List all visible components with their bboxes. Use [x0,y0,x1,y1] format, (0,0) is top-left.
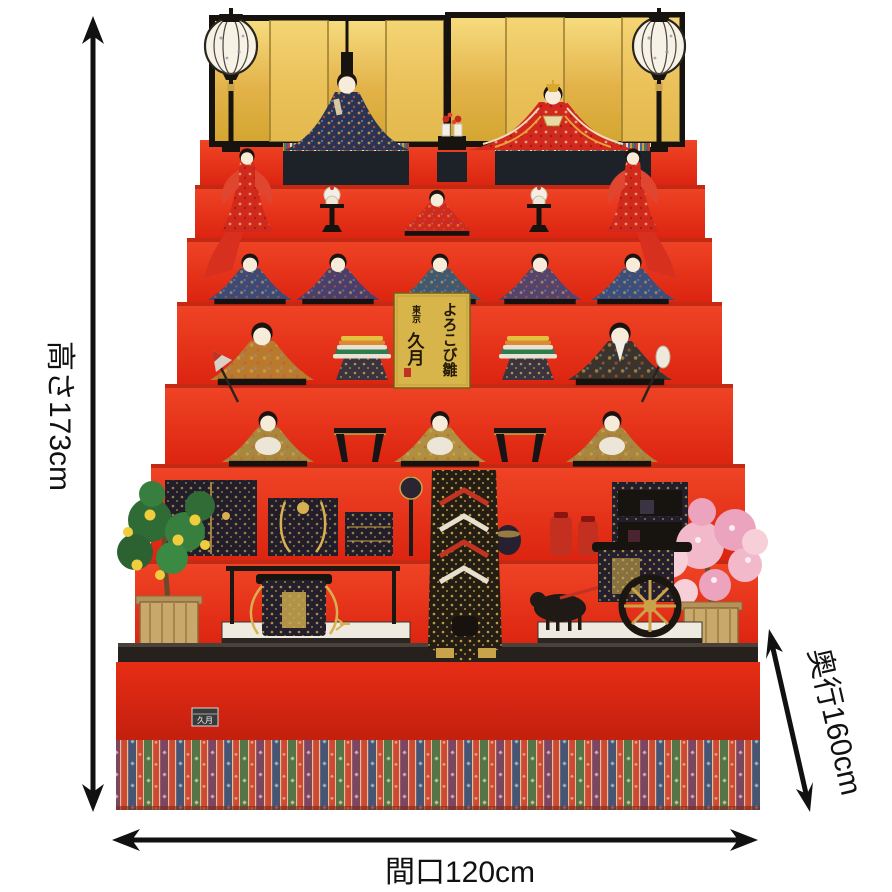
plaque-maker: 久月 [405,331,426,367]
hina-doll-seven-tier-display-photo: よろこび雛 東京 久月 [0,0,892,892]
width-dimension: 間口120cm [112,829,758,889]
plaque-seal [404,368,411,377]
product-image-canvas: よろこび雛 東京 久月 [0,0,892,892]
plaque-city: 東京 [411,304,421,324]
hishimochi-left [333,336,391,380]
height-dimension: 高さ173cm [43,16,104,812]
hishimochi-right [499,336,557,380]
plaque-title: よろこび雛 [441,302,458,378]
maker-badge-text: 久月 [197,715,213,725]
double-headed-arrow-horizontal-icon [112,829,758,851]
depth-label: 奥行160cm [802,645,868,799]
width-label: 間口120cm [385,856,535,889]
calligraphy-plaque: よろこび雛 東京 久月 [394,293,470,388]
double-headed-arrow-vertical-icon [82,16,104,812]
scene-svg: よろこび雛 東京 久月 [0,0,892,892]
brocade-runner [428,470,502,662]
depth-dimension: 奥行160cm [766,629,867,812]
maker-badge: 久月 [192,708,218,726]
height-label: 高さ173cm [43,341,76,491]
